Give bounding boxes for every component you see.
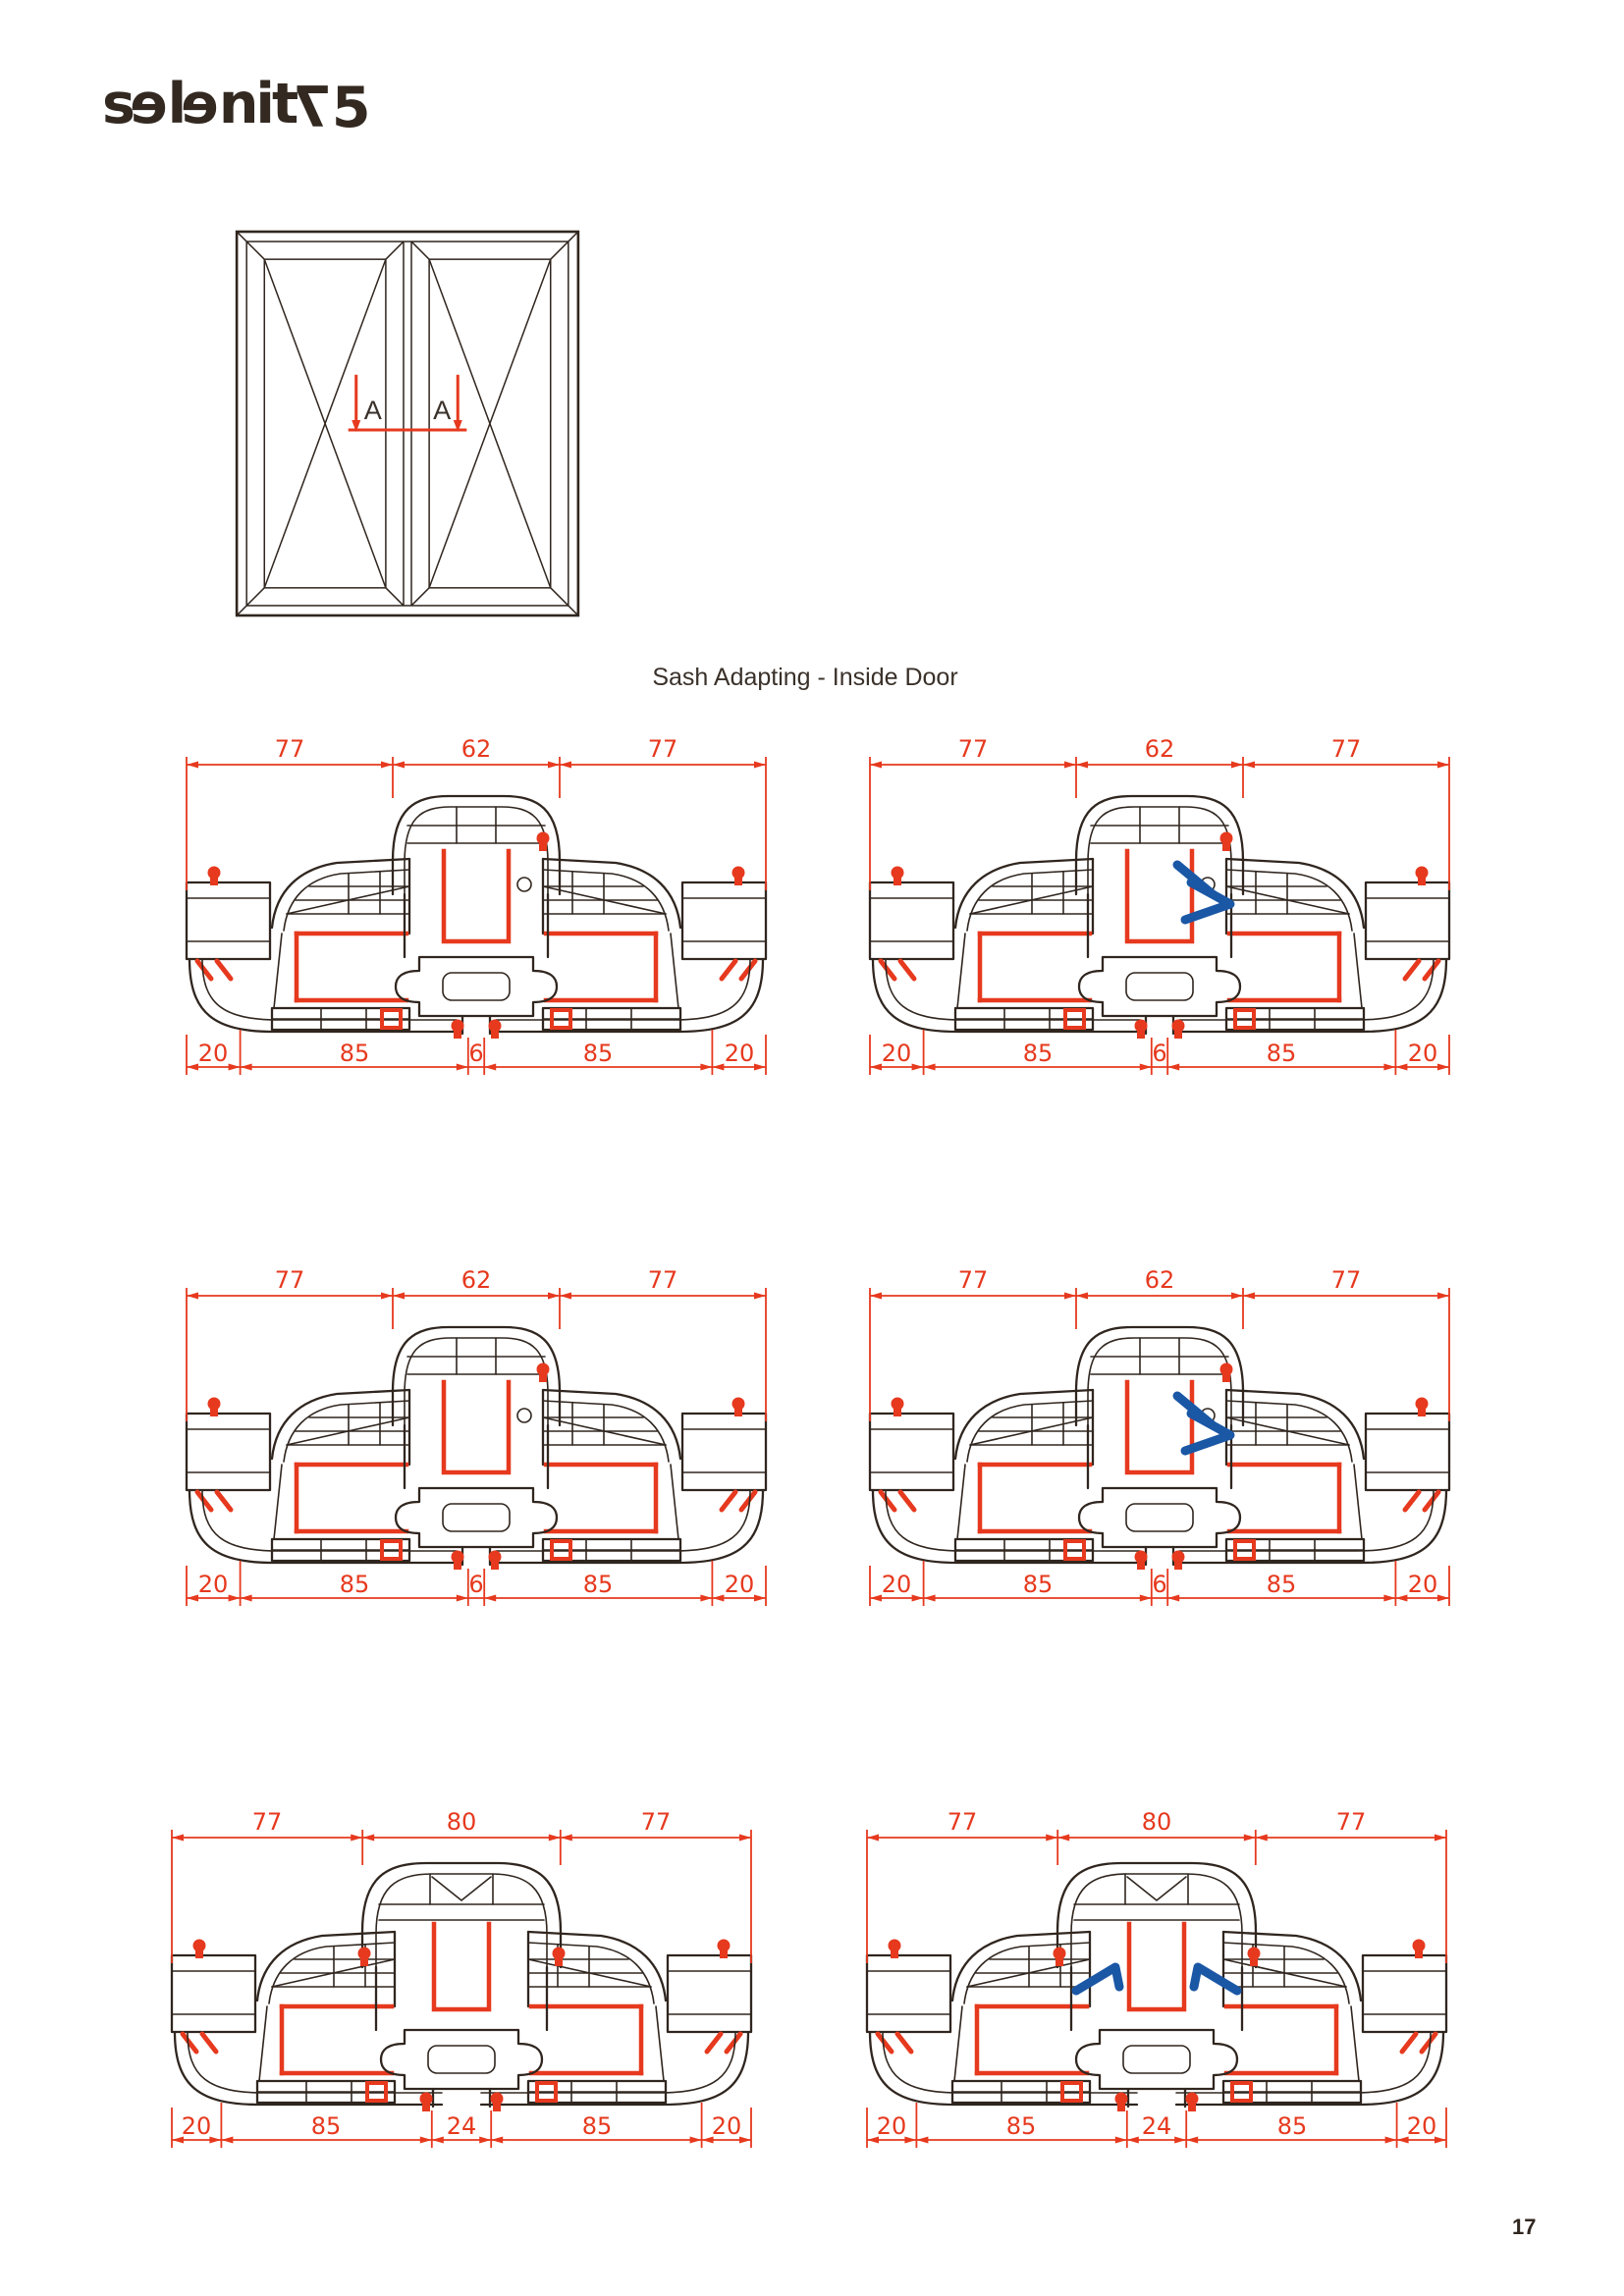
dim-label: 20 bbox=[712, 2112, 742, 2140]
dim-label: 24 bbox=[1142, 2112, 1172, 2140]
logo-letter: l bbox=[168, 77, 185, 133]
logo-letter: s bbox=[102, 77, 133, 133]
dim-label: 6 bbox=[1152, 1040, 1166, 1067]
window-elevation-diagram: A A bbox=[234, 229, 581, 618]
page-number: 17 bbox=[1512, 2215, 1536, 2240]
document-page: selenit75 bbox=[0, 0, 1624, 2296]
cross-section-row1-right: 77 62 77 20 85 6 85 20 bbox=[845, 735, 1474, 1089]
dim-label: 62 bbox=[1145, 735, 1175, 763]
section-label-a-right: A bbox=[433, 395, 452, 425]
dim-label: 85 bbox=[1267, 1040, 1297, 1067]
dim-label: 85 bbox=[1277, 2112, 1308, 2140]
dim-label: 77 bbox=[641, 1808, 672, 1836]
logo-letter: t bbox=[272, 77, 296, 133]
dim-label: 77 bbox=[252, 1808, 283, 1836]
section-cut-marker: A A bbox=[349, 375, 467, 432]
dim-label: 77 bbox=[958, 735, 989, 763]
cross-section-row3-left: 77 80 77 20 85 24 85 20 bbox=[147, 1808, 776, 2162]
sash-adaptor-connector bbox=[1076, 1967, 1237, 1991]
logo-letter: n bbox=[219, 77, 256, 133]
dim-label: 85 bbox=[340, 1040, 370, 1067]
dim-label: 62 bbox=[461, 1266, 492, 1294]
dim-label: 20 bbox=[882, 1571, 912, 1598]
dim-label: 20 bbox=[1407, 2112, 1437, 2140]
dim-label: 80 bbox=[447, 1808, 477, 1836]
dim-label: 77 bbox=[1331, 1266, 1362, 1294]
dim-label: 20 bbox=[725, 1571, 755, 1598]
dim-label: 62 bbox=[461, 735, 492, 763]
dim-label: 77 bbox=[947, 1808, 978, 1836]
dim-label: 85 bbox=[1267, 1571, 1297, 1598]
sash-adaptor-connector bbox=[1177, 1396, 1230, 1451]
logo-letter: e bbox=[184, 77, 219, 133]
sash-adaptor-connector bbox=[1177, 865, 1230, 920]
cross-section-row3-right: 77 80 77 20 85 24 85 20 bbox=[842, 1808, 1471, 2162]
dim-label: 80 bbox=[1142, 1808, 1172, 1836]
dim-label: 6 bbox=[468, 1571, 483, 1598]
dim-label: 77 bbox=[648, 1266, 678, 1294]
dim-label: 85 bbox=[311, 2112, 342, 2140]
dim-label: 20 bbox=[198, 1571, 229, 1598]
dim-label: 6 bbox=[1152, 1571, 1166, 1598]
cross-section-row2-right: 77 62 77 20 85 6 85 20 bbox=[845, 1266, 1474, 1620]
dim-label: 20 bbox=[877, 2112, 907, 2140]
dim-label: 20 bbox=[1408, 1040, 1438, 1067]
dim-label: 85 bbox=[583, 1040, 614, 1067]
dim-label: 20 bbox=[1408, 1571, 1438, 1598]
cross-section-row1-left: 77 62 77 20 85 6 85 20 bbox=[162, 735, 790, 1089]
dim-label: 77 bbox=[648, 735, 678, 763]
dim-label: 6 bbox=[468, 1040, 483, 1067]
elevation-outer-frame bbox=[237, 232, 578, 615]
dim-label: 85 bbox=[582, 2112, 613, 2140]
dim-label: 20 bbox=[182, 2112, 212, 2140]
dim-label: 77 bbox=[958, 1266, 989, 1294]
dim-label: 20 bbox=[882, 1040, 912, 1067]
cross-section-row2-left: 77 62 77 20 85 6 85 20 bbox=[162, 1266, 790, 1620]
dim-label: 20 bbox=[725, 1040, 755, 1067]
dim-label: 77 bbox=[1331, 735, 1362, 763]
dim-label: 77 bbox=[1336, 1808, 1367, 1836]
dim-label: 85 bbox=[1006, 2112, 1037, 2140]
logo-letter: i bbox=[255, 77, 272, 133]
dim-label: 85 bbox=[583, 1571, 614, 1598]
dim-label: 85 bbox=[1023, 1571, 1054, 1598]
logo-letter: e bbox=[133, 77, 168, 133]
brand-logo: selenit75 bbox=[102, 77, 368, 133]
dim-label: 77 bbox=[275, 1266, 305, 1294]
dim-label: 85 bbox=[340, 1571, 370, 1598]
logo-letter: 7 bbox=[296, 80, 332, 136]
page-title: Sash Adapting - Inside Door bbox=[550, 664, 1060, 692]
section-label-a-left: A bbox=[364, 395, 383, 425]
dim-label: 62 bbox=[1145, 1266, 1175, 1294]
dim-label: 77 bbox=[275, 735, 305, 763]
dim-label: 20 bbox=[198, 1040, 229, 1067]
dim-label: 85 bbox=[1023, 1040, 1054, 1067]
logo-letter: 5 bbox=[332, 80, 368, 136]
dim-label: 24 bbox=[447, 2112, 477, 2140]
